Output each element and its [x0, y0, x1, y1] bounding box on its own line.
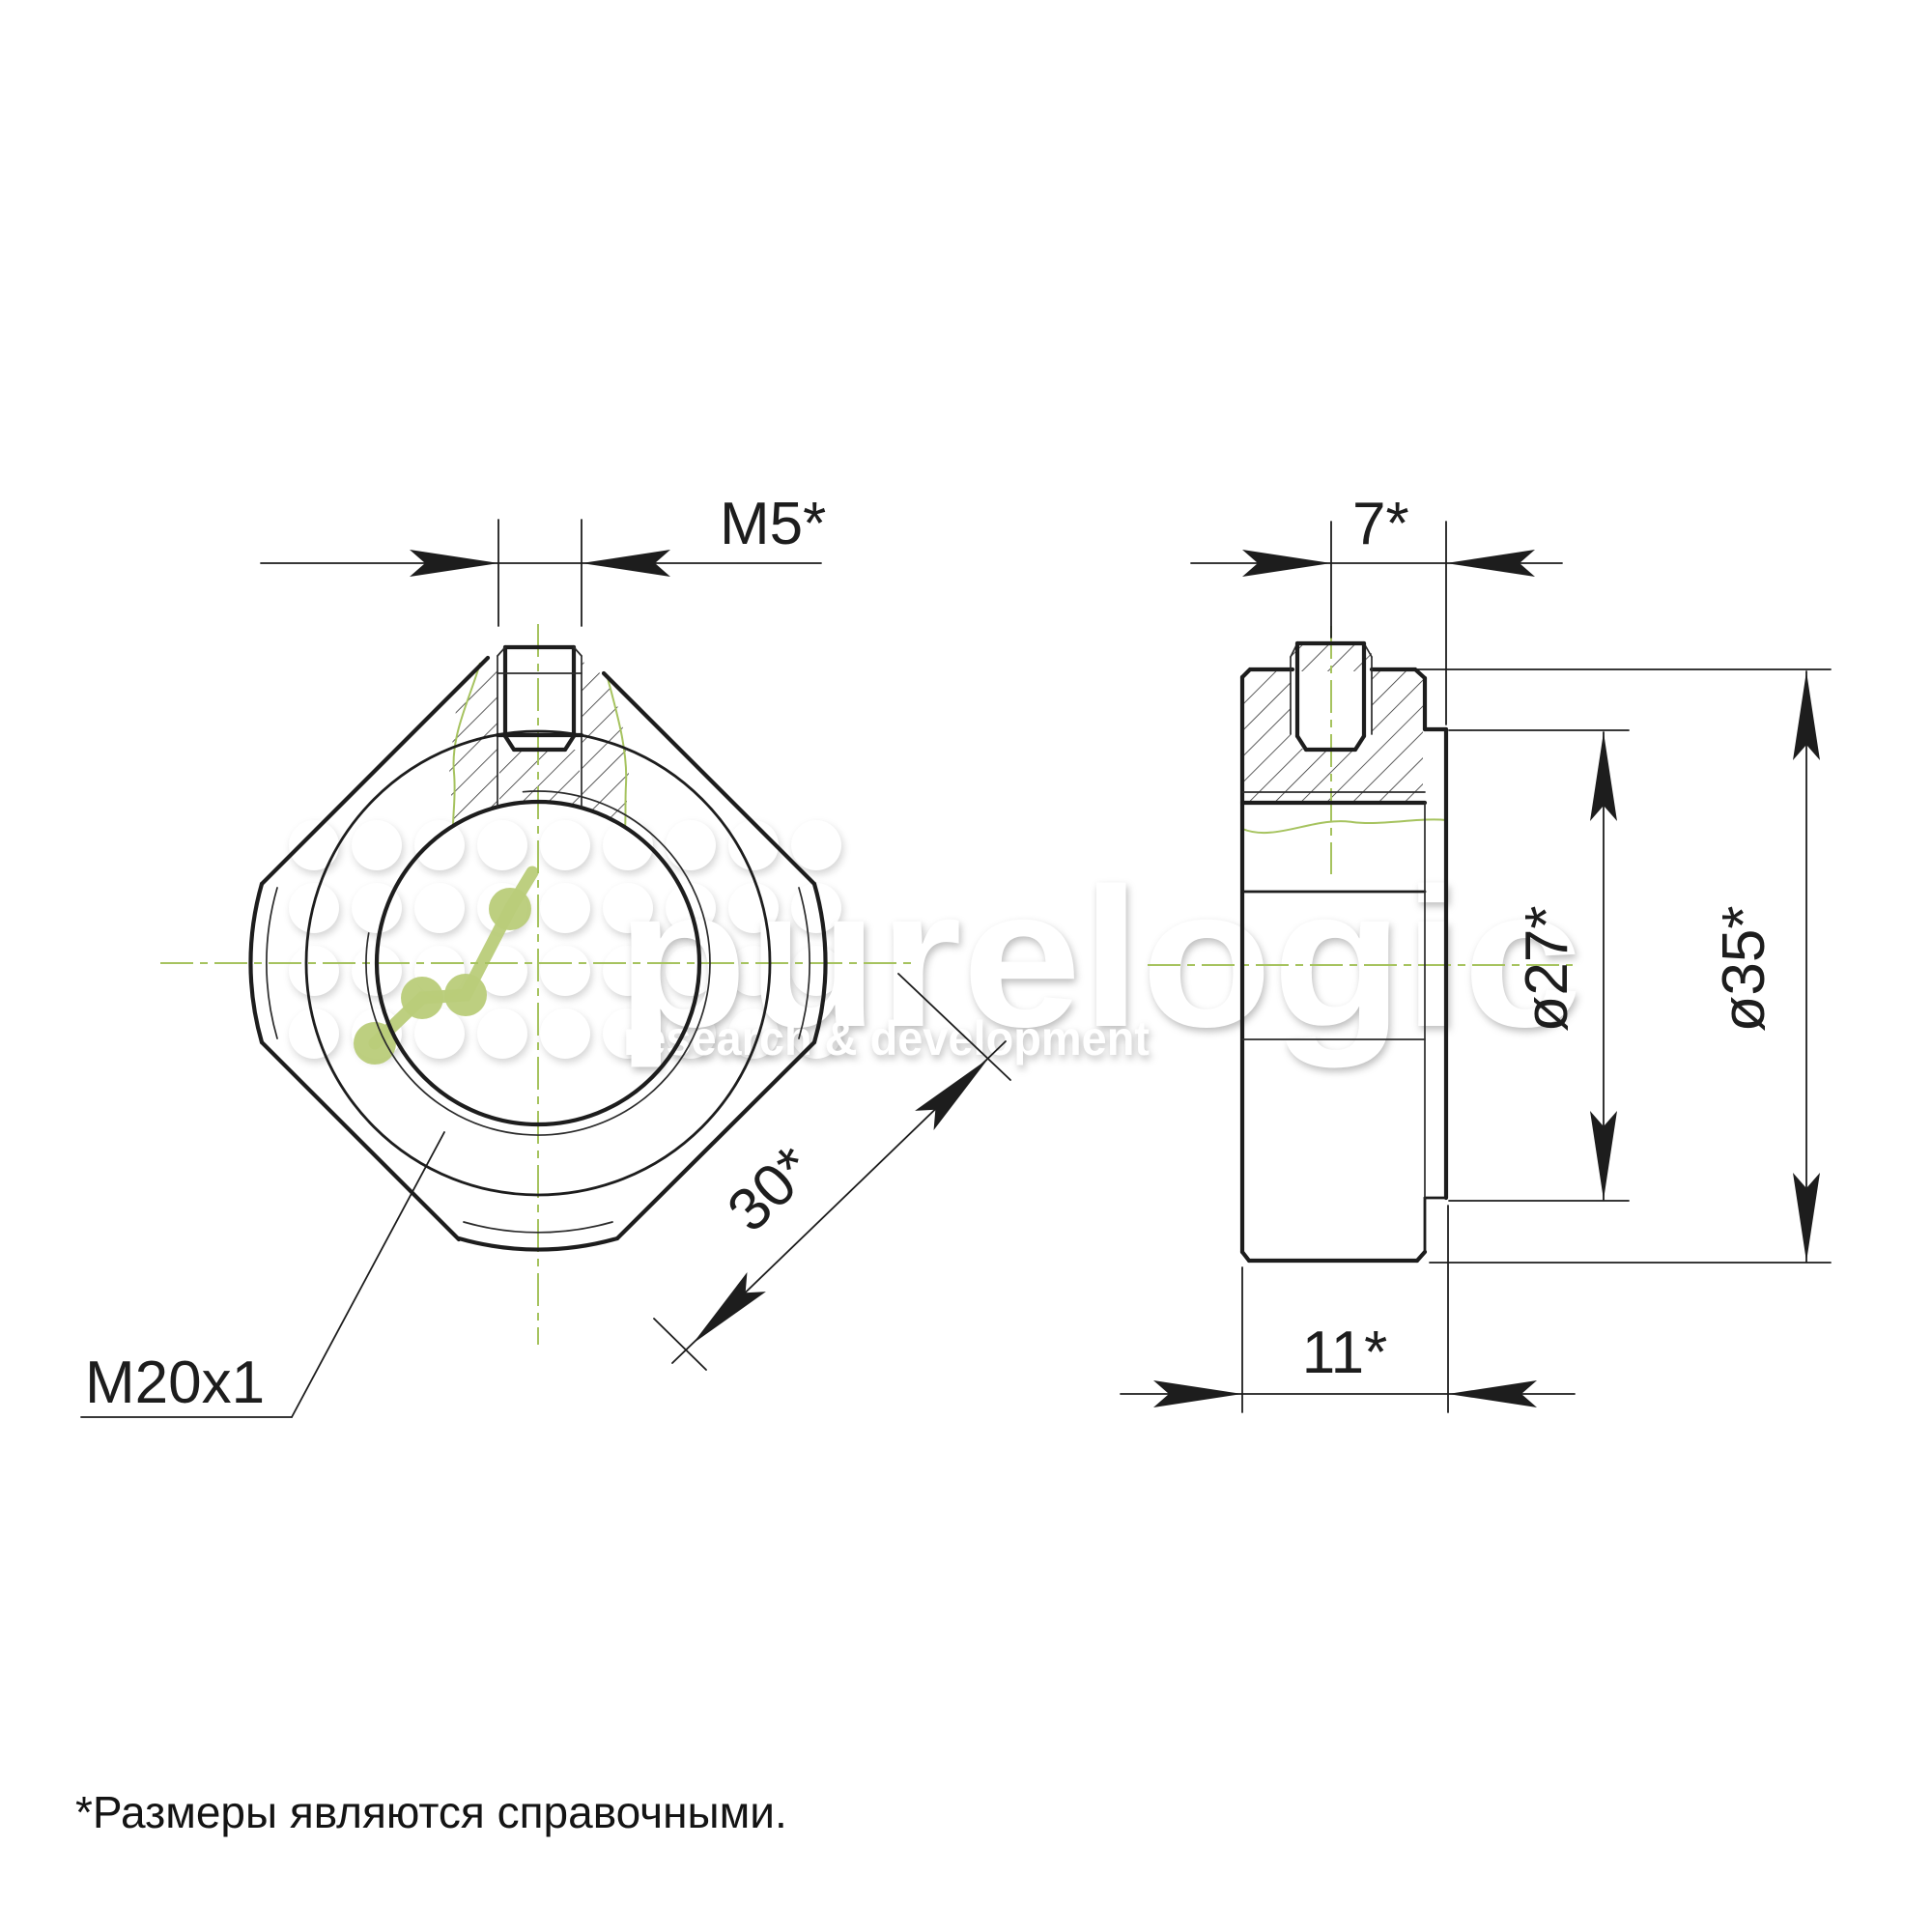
- label-11: 11*: [1302, 1320, 1388, 1386]
- dim-m5: M5*: [261, 491, 826, 626]
- thread-callout-m20: M20x1: [81, 1132, 444, 1417]
- label-m20x1: M20x1: [85, 1350, 265, 1416]
- technical-drawing-page: purelogic research & development: [0, 0, 1932, 1932]
- technical-drawing-canvas: purelogic research & development: [0, 0, 1932, 1932]
- footnote: *Размеры являются справочными.: [75, 1787, 787, 1837]
- label-30: 30*: [715, 1134, 826, 1244]
- dim-11: 11*: [1121, 1206, 1575, 1412]
- label-d35: ø35*: [1711, 906, 1777, 1033]
- label-d27: ø27*: [1514, 906, 1580, 1033]
- watermark-subtitle: research & development: [623, 1011, 1150, 1065]
- side-break-line: [1242, 819, 1446, 833]
- label-m5: M5*: [720, 491, 826, 557]
- watermark: purelogic research & development: [289, 820, 1582, 1068]
- label-7: 7*: [1352, 491, 1409, 557]
